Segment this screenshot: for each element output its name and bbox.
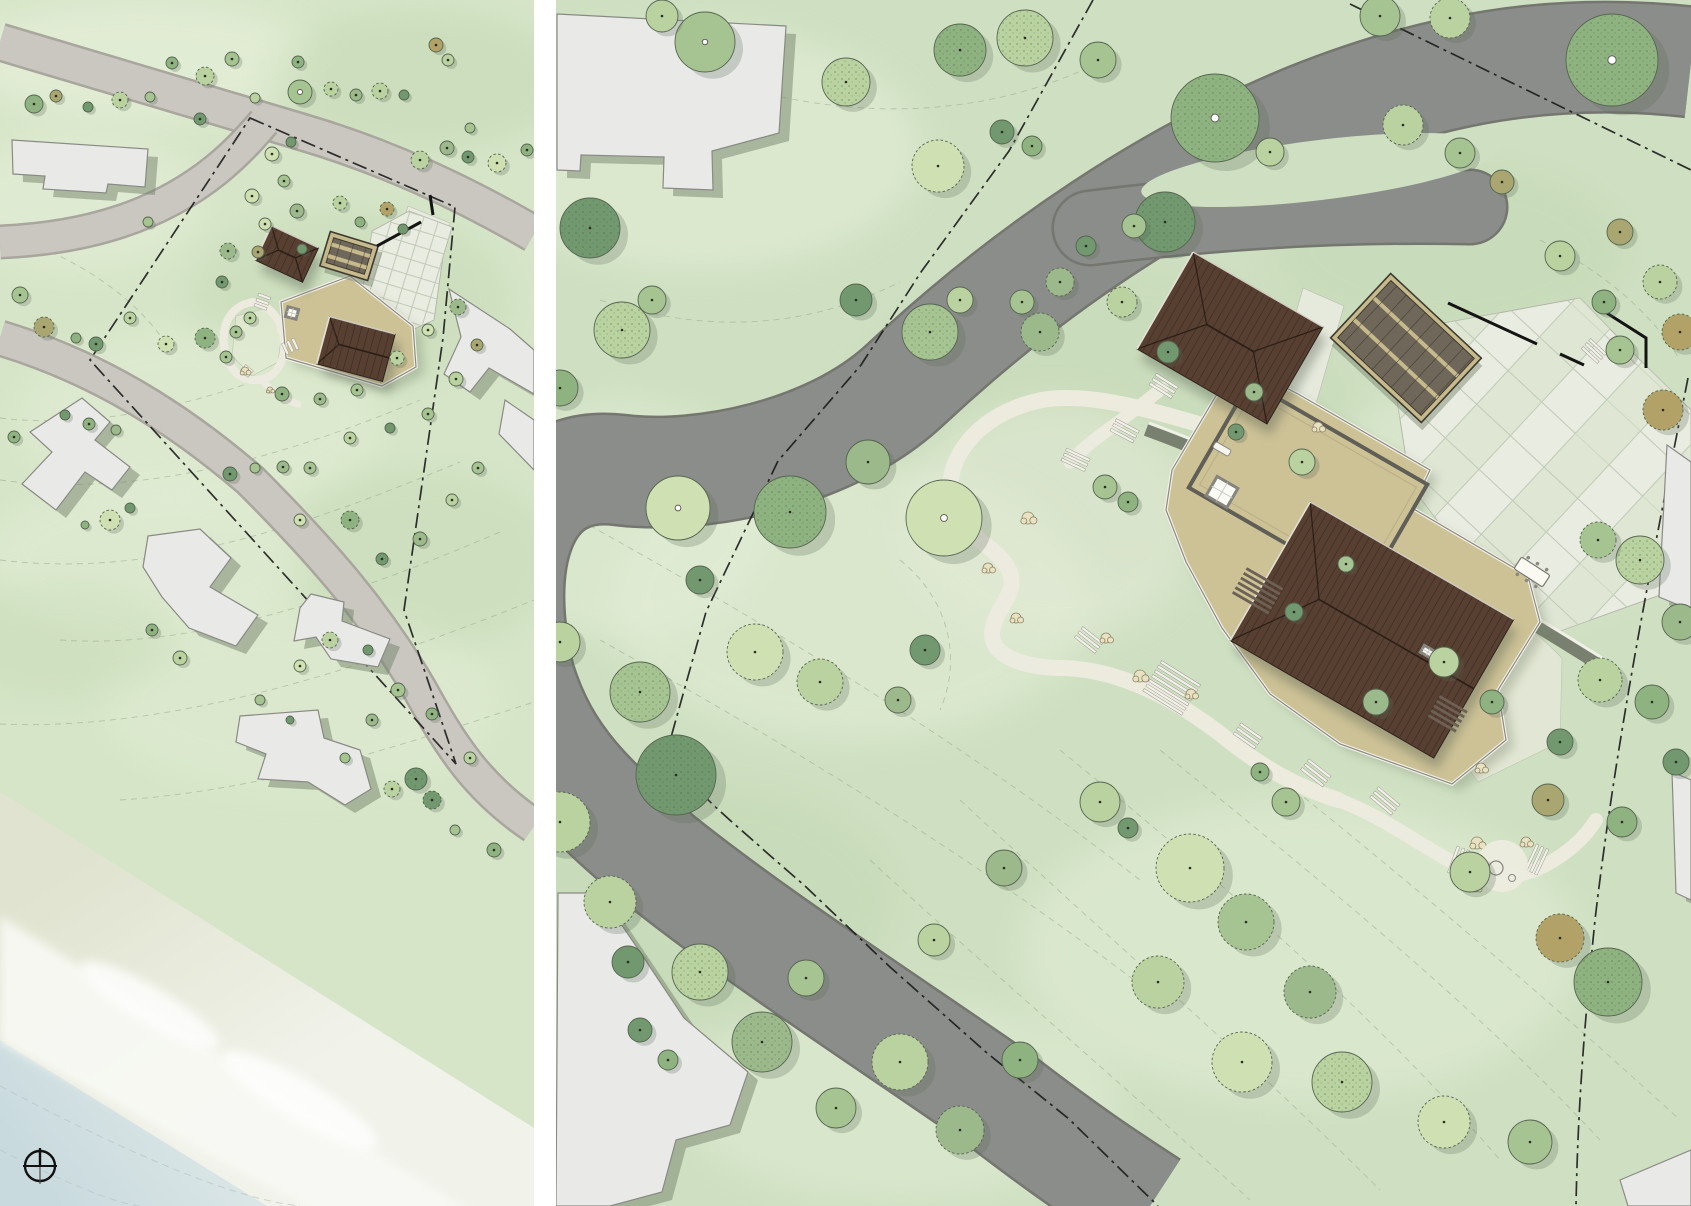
tree-center-mark — [1024, 37, 1027, 40]
tree-center-mark — [651, 299, 654, 302]
tree-center-mark — [419, 538, 422, 541]
tree-center-mark — [1269, 151, 1272, 154]
tree-center-mark — [1189, 867, 1192, 870]
tree-icon — [286, 716, 294, 724]
tree-icon — [286, 137, 296, 147]
tree-center-mark — [381, 558, 384, 561]
tree-center-mark — [675, 505, 681, 511]
tree-center-mark — [129, 317, 132, 320]
tree-center-mark — [55, 95, 58, 98]
tree-center-mark — [427, 413, 430, 416]
tree-center-mark — [1127, 501, 1130, 504]
tree-center-mark — [1443, 1121, 1446, 1124]
tree-center-mark — [467, 156, 470, 159]
tree-center-mark — [1104, 486, 1107, 489]
tree-center-mark — [1449, 17, 1452, 20]
tree-icon — [83, 102, 93, 112]
tree-center-mark — [1127, 827, 1130, 830]
tree-center-mark — [1501, 181, 1504, 184]
tree-icon — [143, 217, 153, 227]
tree-center-mark — [941, 515, 948, 522]
tree-center-mark — [13, 436, 16, 439]
tree-center-mark — [451, 499, 454, 502]
tree-center-mark — [1164, 221, 1167, 224]
tree-center-mark — [431, 799, 434, 802]
tree-center-mark — [199, 118, 202, 121]
tree-center-mark — [699, 971, 702, 974]
tree-center-mark — [1675, 761, 1678, 764]
tree-center-mark — [819, 681, 822, 684]
tree-center-mark — [299, 519, 302, 522]
tree-center-mark — [1001, 131, 1004, 134]
tree-center-mark — [924, 649, 927, 652]
tree-icon — [250, 93, 260, 103]
tree-icon — [297, 244, 307, 254]
tree-center-mark — [282, 466, 285, 469]
tree-center-mark — [329, 639, 332, 642]
tree-center-mark — [639, 1029, 642, 1032]
site-plan-canvas — [0, 0, 1691, 1206]
tree-icon — [250, 463, 260, 473]
tree-center-mark — [251, 195, 254, 198]
tree-center-mark — [349, 437, 352, 440]
tree-center-mark — [559, 641, 562, 644]
tree-center-mark — [339, 202, 342, 205]
tree-center-mark — [959, 299, 962, 302]
tree-center-mark — [271, 153, 274, 156]
tree-center-mark — [867, 461, 870, 464]
tree-center-mark — [1133, 225, 1136, 228]
tree-center-mark — [476, 344, 479, 347]
tree-center-mark — [319, 398, 322, 401]
tree-center-mark — [1099, 801, 1102, 804]
tree-center-mark — [1211, 114, 1219, 122]
tree-center-mark — [1039, 331, 1042, 334]
tree-center-mark — [171, 62, 174, 65]
tree-center-mark — [95, 343, 98, 346]
tree-center-mark — [88, 423, 91, 426]
tree-center-mark — [959, 49, 962, 52]
tree-center-mark — [933, 939, 936, 942]
tree-icon — [465, 123, 475, 133]
tree-center-mark — [609, 901, 612, 904]
tree-center-mark — [1021, 301, 1024, 304]
tree-icon — [71, 333, 81, 343]
tree-center-mark — [257, 251, 260, 254]
tree-icon — [450, 825, 460, 835]
tree-center-mark — [1469, 871, 1472, 874]
tree-center-mark — [43, 326, 46, 329]
tree-icon — [399, 90, 409, 100]
tree-center-mark — [225, 356, 228, 359]
tree-icon — [355, 217, 365, 227]
tree-icon — [81, 521, 89, 529]
tree-center-mark — [675, 774, 678, 777]
tree-center-mark — [1459, 152, 1462, 155]
tree-center-mark — [1559, 255, 1562, 258]
site-plan — [0, 0, 1691, 1206]
tree-center-mark — [929, 331, 932, 334]
tree-center-mark — [1619, 349, 1622, 352]
tree-center-mark — [897, 699, 900, 702]
tree-icon — [340, 753, 350, 763]
tree-icon — [255, 695, 265, 705]
tree-center-mark — [1529, 1141, 1532, 1144]
tree-icon — [145, 92, 155, 102]
tree-center-mark — [371, 719, 374, 722]
tree-center-mark — [297, 61, 300, 64]
tree-center-mark — [1679, 621, 1682, 624]
tree-center-mark — [1259, 771, 1262, 774]
tree-center-mark — [1059, 281, 1062, 284]
tree-center-mark — [455, 378, 458, 381]
tree-center-mark — [283, 180, 286, 183]
tree-center-mark — [1379, 15, 1382, 18]
tree-center-mark — [1608, 56, 1616, 64]
tree-center-mark — [386, 208, 389, 211]
tree-center-mark — [559, 821, 562, 824]
tree-center-mark — [526, 149, 529, 152]
tree-center-mark — [1559, 937, 1562, 940]
tree-center-mark — [1597, 539, 1600, 542]
tree-center-mark — [589, 227, 592, 230]
tree-center-mark — [1003, 867, 1006, 870]
tree-center-mark — [1253, 391, 1256, 394]
tree-center-mark — [621, 329, 624, 332]
tree-center-mark — [899, 1061, 902, 1064]
tree-center-mark — [109, 519, 112, 522]
tree-center-mark — [1607, 981, 1610, 984]
tree-center-mark — [309, 467, 312, 470]
tree-center-mark — [1241, 1061, 1244, 1064]
tree-center-mark — [496, 162, 499, 165]
tree-center-mark — [356, 389, 359, 392]
tree-center-mark — [493, 849, 496, 852]
tree-center-mark — [231, 58, 234, 61]
tree-center-mark — [119, 99, 122, 102]
tree-center-mark — [639, 691, 642, 694]
tree-center-mark — [1157, 981, 1160, 984]
tree-center-mark — [447, 59, 450, 62]
tree-center-mark — [1167, 351, 1170, 354]
tree-center-mark — [1235, 431, 1238, 434]
tree-center-mark — [1031, 145, 1034, 148]
tree-center-mark — [754, 651, 757, 654]
detail-panel — [470, 0, 1691, 1206]
tree-center-mark — [349, 519, 352, 522]
tree-center-mark — [229, 473, 232, 476]
tree-center-mark — [298, 90, 303, 95]
tree-center-mark — [227, 250, 230, 253]
tree-center-mark — [1659, 281, 1662, 284]
tree-center-mark — [699, 579, 702, 582]
tree-center-mark — [379, 90, 382, 93]
tree-icon — [111, 425, 121, 435]
skylight — [285, 307, 298, 320]
tree-center-mark — [1621, 821, 1624, 824]
tree-center-mark — [355, 94, 358, 97]
tree-center-mark — [1619, 231, 1622, 234]
tree-center-mark — [1443, 661, 1446, 664]
tree-center-mark — [1301, 461, 1304, 464]
tree-center-mark — [299, 665, 302, 668]
tree-center-mark — [249, 317, 252, 320]
tree-center-mark — [789, 511, 792, 514]
tree-center-mark — [435, 44, 438, 47]
tree-center-mark — [1019, 1059, 1022, 1062]
tree-center-mark — [937, 165, 940, 168]
tree-center-mark — [396, 357, 399, 360]
tree-center-mark — [1599, 679, 1602, 682]
tree-center-mark — [165, 343, 168, 346]
tree-center-mark — [1375, 701, 1378, 704]
tree-center-mark — [427, 329, 430, 332]
tree-center-mark — [431, 713, 434, 716]
tree-center-mark — [702, 39, 707, 44]
tree-icon — [125, 503, 135, 513]
tree-icon — [60, 410, 70, 420]
tree-center-mark — [1085, 245, 1088, 248]
tree-center-mark — [179, 657, 182, 660]
tree-center-mark — [1121, 301, 1124, 304]
tree-center-mark — [469, 757, 472, 760]
tree-center-mark — [1341, 1081, 1344, 1084]
tree-center-mark — [1662, 409, 1665, 412]
tree-center-mark — [1097, 59, 1100, 62]
tree-center-mark — [761, 1041, 764, 1044]
tree-center-mark — [1245, 921, 1248, 924]
tree-icon — [1360, 0, 1400, 36]
tree-center-mark — [1309, 991, 1312, 994]
tree-center-mark — [1402, 124, 1405, 127]
tree-center-mark — [296, 210, 299, 213]
tree-center-mark — [221, 281, 224, 284]
tree-center-mark — [1639, 559, 1642, 562]
tree-center-mark — [204, 75, 207, 78]
tree-center-mark — [391, 788, 394, 791]
tree-center-mark — [1345, 563, 1348, 566]
tree-center-mark — [151, 629, 154, 632]
tree-center-mark — [235, 331, 238, 334]
tree-center-mark — [415, 778, 418, 781]
tree-center-mark — [1293, 611, 1296, 614]
tree-center-mark — [419, 159, 422, 162]
tree-center-mark — [264, 223, 267, 226]
tree-center-mark — [1547, 799, 1550, 802]
tree-center-mark — [667, 1059, 670, 1062]
tree-icon — [398, 224, 408, 234]
tree-center-mark — [281, 393, 284, 396]
tree-center-mark — [477, 467, 480, 470]
tree-center-mark — [204, 337, 207, 340]
tree-center-mark — [1559, 741, 1562, 744]
tree-icon — [385, 423, 395, 433]
tree-center-mark — [19, 294, 22, 297]
tree-center-mark — [1651, 701, 1654, 704]
tree-center-mark — [1679, 331, 1682, 334]
tree-center-mark — [627, 961, 630, 964]
tree-center-mark — [330, 88, 333, 91]
tree-center-mark — [855, 299, 858, 302]
tree-center-mark — [33, 103, 36, 106]
tree-center-mark — [835, 1107, 838, 1110]
tree-icon — [363, 645, 373, 655]
tree-center-mark — [1285, 801, 1288, 804]
tree-center-mark — [805, 977, 808, 980]
tree-center-mark — [1491, 701, 1494, 704]
tree-center-mark — [1603, 301, 1606, 304]
tree-center-mark — [397, 689, 400, 692]
tree-center-mark — [661, 15, 664, 18]
tree-center-mark — [457, 306, 460, 309]
tree-center-mark — [959, 1129, 962, 1132]
tree-center-mark — [559, 387, 562, 390]
tree-center-mark — [446, 147, 449, 150]
tree-center-mark — [845, 81, 848, 84]
